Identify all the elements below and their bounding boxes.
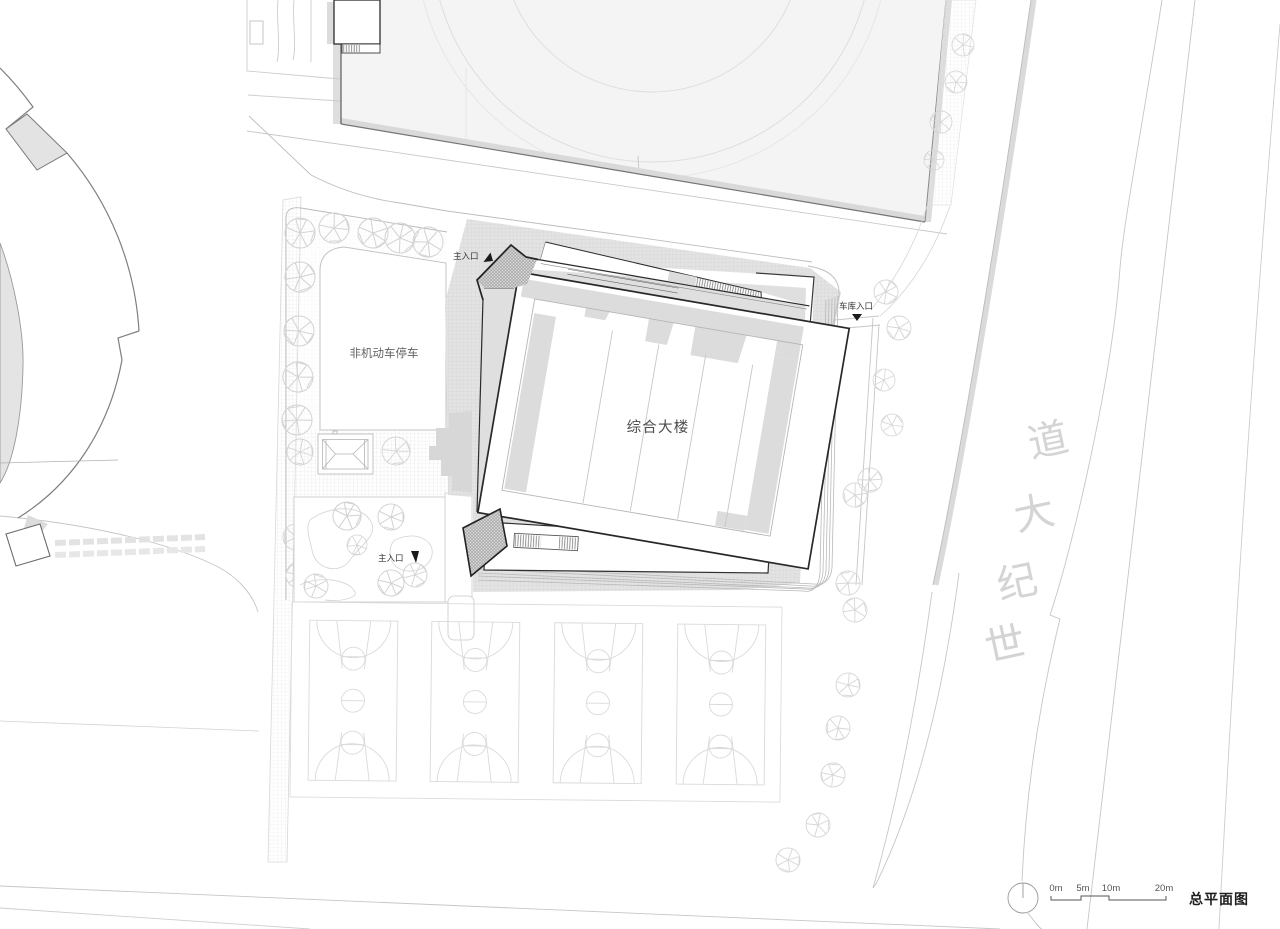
svg-text:主入口: 主入口 <box>378 553 404 563</box>
svg-text:车库入口: 车库入口 <box>839 301 873 311</box>
svg-text:10m: 10m <box>1102 883 1121 894</box>
svg-text:总平面图: 总平面图 <box>1189 891 1249 907</box>
svg-text:非机动车停车: 非机动车停车 <box>350 346 419 360</box>
svg-text:0m: 0m <box>1049 883 1062 894</box>
svg-text:5m: 5m <box>1076 883 1089 894</box>
svg-text:20m: 20m <box>1155 883 1174 894</box>
svg-text:综合大楼: 综合大楼 <box>627 419 690 436</box>
svg-text:主入口: 主入口 <box>453 251 479 261</box>
